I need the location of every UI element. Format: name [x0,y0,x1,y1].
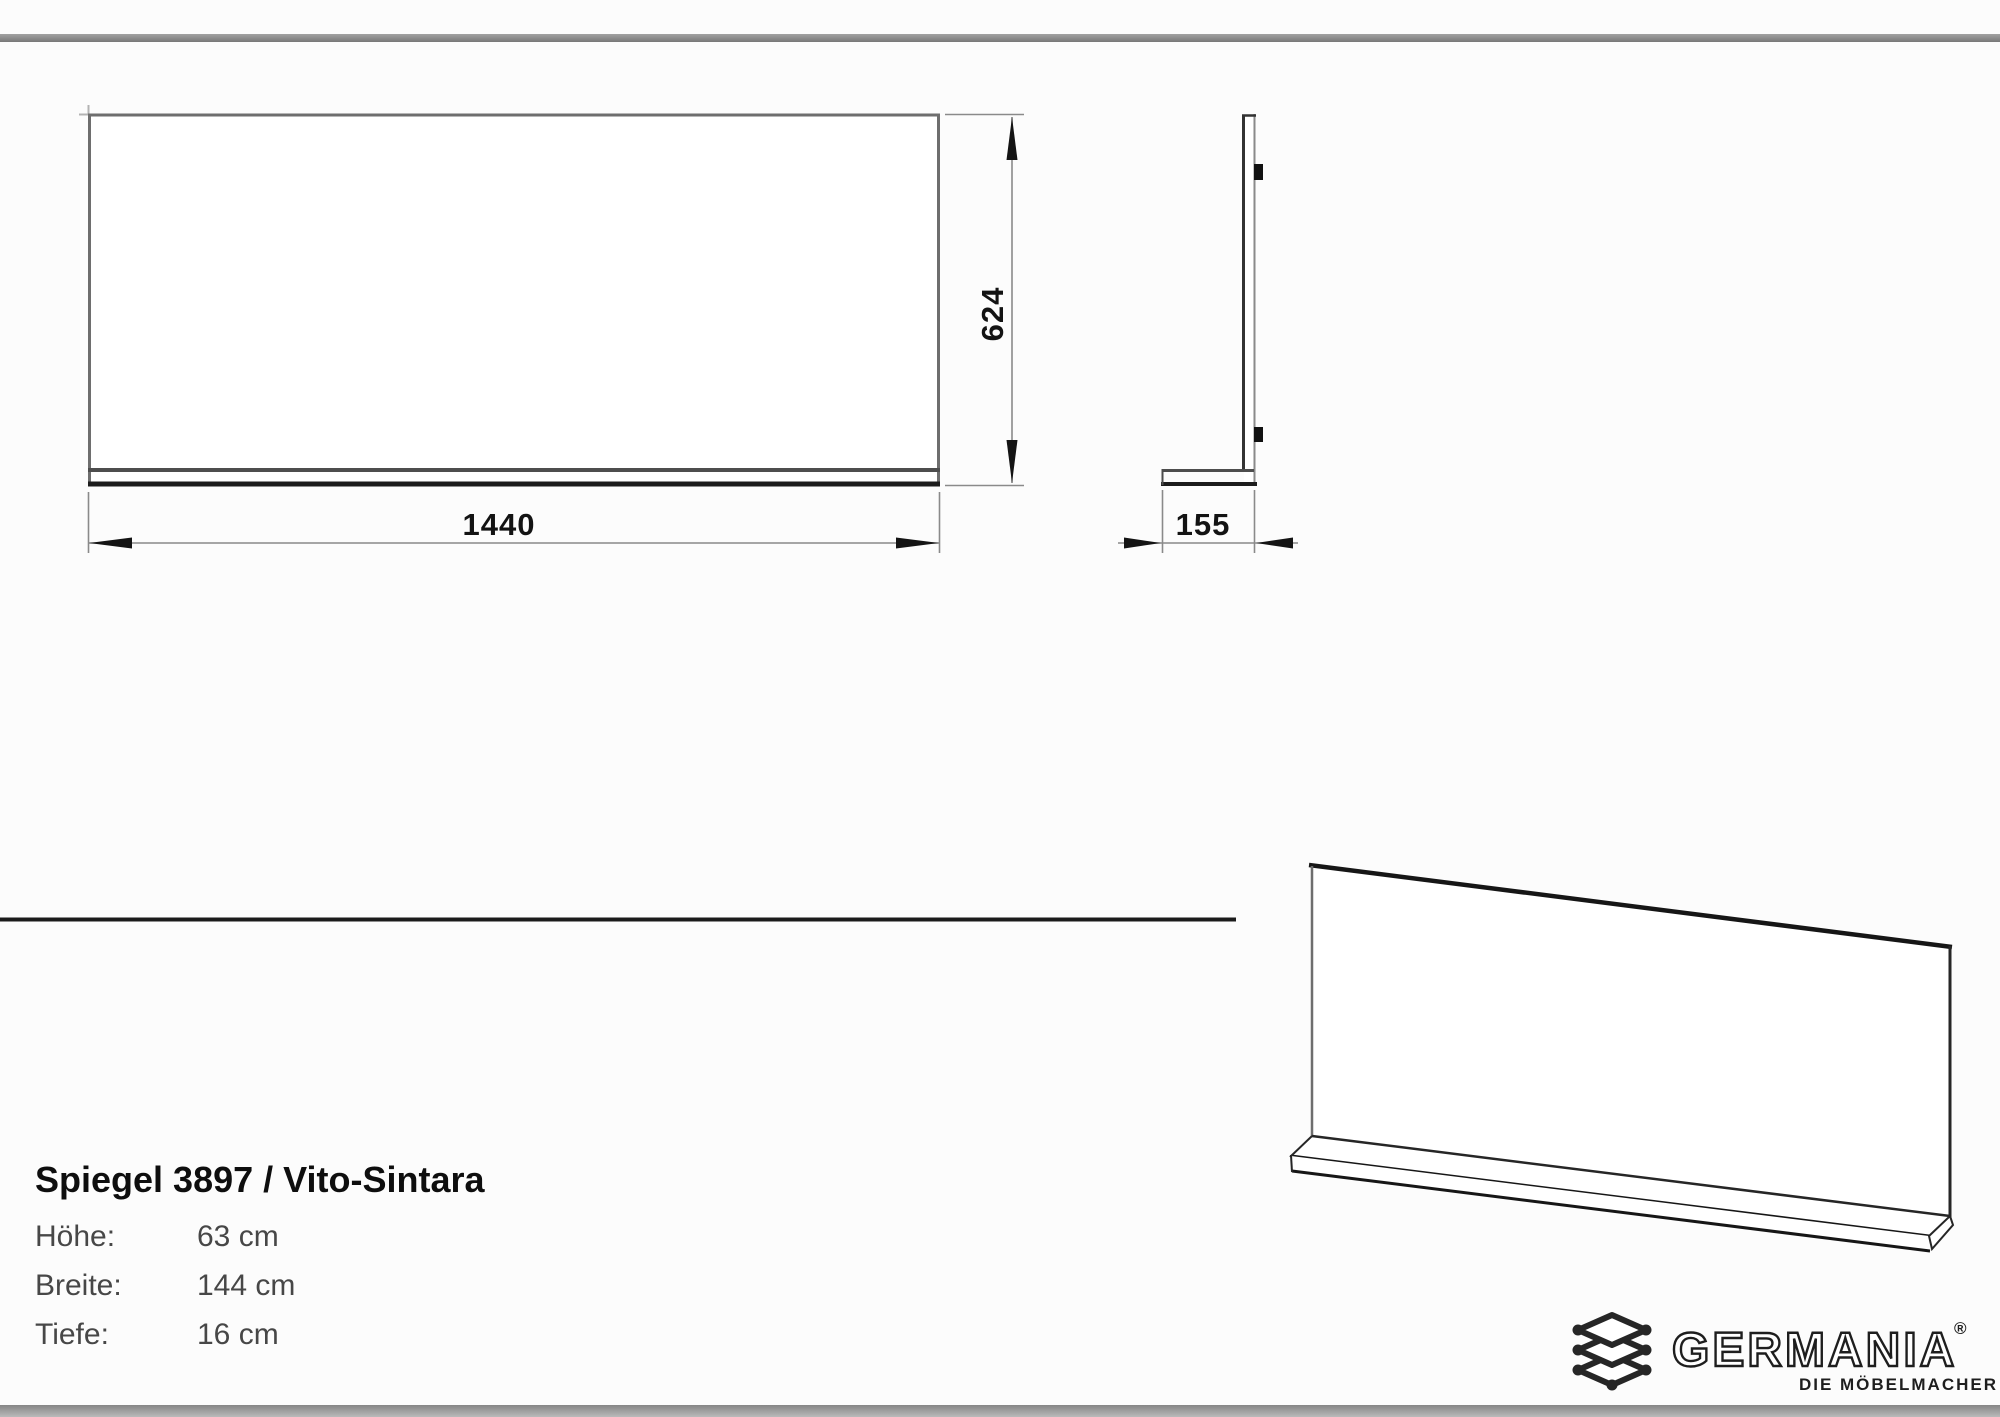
bottom-border-bar [0,1405,2000,1417]
germania-logo: GERMANIA ® DIE MÖBELMACHER [1548,1302,2000,1417]
logo-brand-text: GERMANIA [1672,1324,1957,1377]
dimension-depth-label: 155 [1150,507,1256,543]
spec-value-breite: 144 cm [197,1261,295,1310]
perspective-view [1290,865,1953,1251]
dimension-width-label: 1440 [88,507,910,543]
spec-label-hoehe: Höhe: [35,1212,197,1261]
logo-registered-mark: ® [1954,1319,1967,1338]
dimension-height-label: 624 [979,275,1007,353]
spec-row-breite: Breite: 144 cm [35,1261,595,1310]
side-view [1161,114,1263,486]
product-specs: Spiegel 3897 / Vito-Sintara Höhe: 63 cm … [35,1160,595,1359]
product-title: Spiegel 3897 / Vito-Sintara [35,1160,595,1200]
spec-value-tiefe: 16 cm [197,1310,279,1359]
spec-row-tiefe: Tiefe: 16 cm [35,1310,595,1359]
stacked-layers-icon [1573,1315,1652,1391]
wall-clip-top [1254,164,1263,180]
spec-value-hoehe: 63 cm [197,1212,279,1261]
logo-tagline: DIE MÖBELMACHER [1799,1375,1998,1394]
spec-label-breite: Breite: [35,1261,197,1310]
spec-row-hoehe: Höhe: 63 cm [35,1212,595,1261]
front-view [79,105,940,484]
wall-clip-bottom [1254,427,1263,442]
spec-label-tiefe: Tiefe: [35,1310,197,1359]
technical-drawing-sheet: 1440 624 155 Spiegel 3897 / Vito-Sintara… [0,0,2000,1417]
